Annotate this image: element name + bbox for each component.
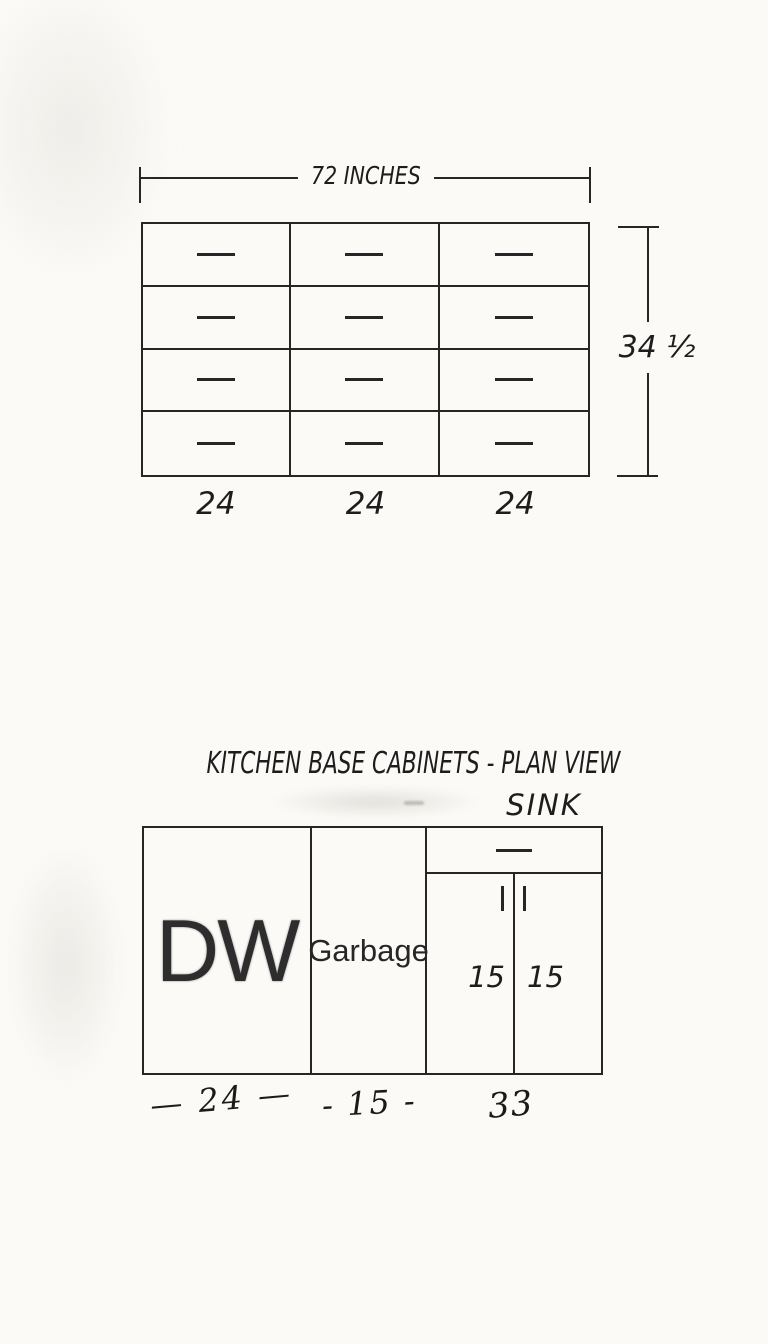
garbage-section: Garbage	[312, 828, 427, 1073]
drawer-pull-mark	[495, 442, 533, 445]
dimension-label-sink: 33	[486, 1083, 535, 1127]
column-width-label: 24	[141, 486, 291, 522]
width-dimension-label: 72 INCHES	[298, 159, 434, 192]
drawer-cell	[143, 224, 291, 287]
dimension-label-garbage: - 15 -	[321, 1082, 418, 1125]
drawer-pull-mark	[345, 378, 383, 381]
drawer-cabinet-front	[141, 222, 590, 477]
garbage-label: Garbage	[308, 933, 429, 969]
height-dimension-label: 34 ½	[617, 322, 698, 373]
column-width-labels: 24 24 24	[141, 486, 590, 522]
drawer-cell	[291, 224, 439, 287]
paper-smudge	[268, 786, 483, 818]
door-handle-mark	[523, 886, 526, 911]
sink-label: SINK	[454, 788, 634, 822]
drawer-pull-mark	[495, 316, 533, 319]
door-handle-mark	[501, 886, 504, 911]
sink-cabinet-section: 15 15	[427, 828, 601, 1073]
drawer-pull-mark	[495, 253, 533, 256]
paper-smudge	[404, 801, 424, 805]
sketch-paper: 72 INCHES 34 ½ 24 24 24 KITCHEN BASE CAB…	[0, 0, 768, 1344]
paper-smudge	[8, 840, 123, 1090]
dimension-tick-mark	[617, 475, 658, 477]
drawer-pull-mark	[345, 316, 383, 319]
drawer-pull-mark	[197, 316, 235, 319]
drawer-cell	[440, 350, 588, 413]
drawer-cell	[143, 287, 291, 350]
drawer-pull-mark	[197, 253, 235, 256]
drawer-pull-mark	[345, 442, 383, 445]
dishwasher-label: DW	[156, 900, 299, 1002]
drawer-cell	[143, 350, 291, 413]
drawer-cell	[440, 224, 588, 287]
door-divider-line	[513, 874, 515, 1073]
height-dimension: 34 ½	[616, 330, 698, 365]
plan-title: KITCHEN BASE CABINETS - PLAN VIEW	[113, 746, 713, 781]
dimension-label-dishwasher: — 24 —	[149, 1074, 295, 1124]
drawer-cell	[291, 287, 439, 350]
dishwasher-section: DW	[144, 828, 312, 1073]
sink-drawer-front	[427, 828, 601, 874]
door-width-label: 15	[527, 960, 564, 994]
cabinet-plan-view: DW Garbage 15 15	[142, 826, 603, 1075]
drawer-pull-mark	[495, 378, 533, 381]
column-width-label: 24	[291, 486, 441, 522]
drawer-pull-mark	[345, 253, 383, 256]
width-dimension: 72 INCHES	[140, 161, 591, 190]
sink-drawer-pull-mark	[496, 849, 532, 852]
sink-doors: 15 15	[427, 874, 601, 1073]
drawer-cell	[440, 287, 588, 350]
column-width-label: 24	[440, 486, 590, 522]
dimension-tick-mark	[618, 226, 659, 228]
door-width-label: 15	[468, 960, 505, 994]
drawer-cell	[291, 412, 439, 475]
drawer-pull-mark	[197, 442, 235, 445]
drawer-cell	[440, 412, 588, 475]
drawer-pull-mark	[197, 378, 235, 381]
drawer-cell	[291, 350, 439, 413]
drawer-cell	[143, 412, 291, 475]
